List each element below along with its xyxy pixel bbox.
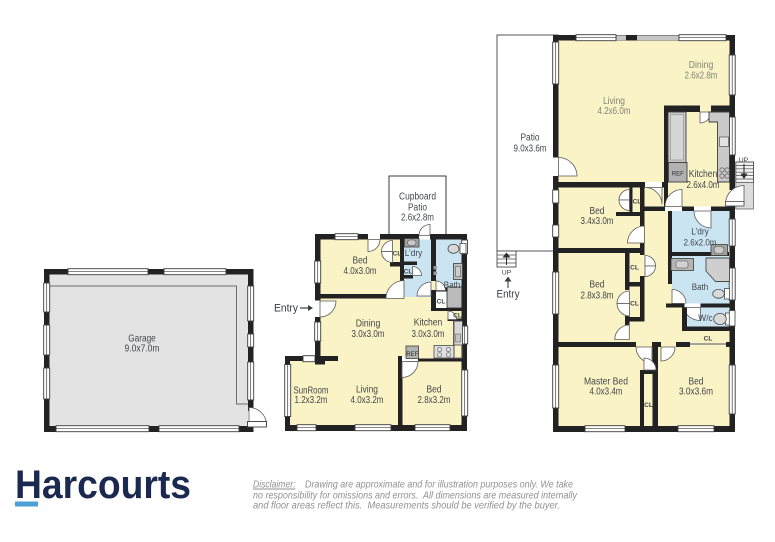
svg-text:UP: UP	[739, 157, 749, 164]
svg-text:9.0x3.6m: 9.0x3.6m	[514, 144, 547, 155]
svg-text:Cupboard: Cupboard	[399, 192, 436, 203]
svg-text:and floor areas reflect this.: and floor areas reflect this. Measuremen…	[253, 501, 560, 512]
svg-text:Bed: Bed	[427, 385, 442, 396]
svg-text:Bed: Bed	[590, 280, 605, 291]
svg-text:2.8x3.2m: 2.8x3.2m	[418, 395, 451, 406]
svg-text:2.6x2.8m: 2.6x2.8m	[401, 213, 434, 224]
svg-text:Entry: Entry	[274, 303, 298, 315]
svg-text:3.0x3.6m: 3.0x3.6m	[679, 387, 713, 398]
svg-text:Bath: Bath	[444, 280, 461, 290]
svg-text:CL: CL	[644, 402, 653, 409]
svg-text:1.2x3.2m: 1.2x3.2m	[295, 395, 328, 406]
svg-text:CL: CL	[453, 313, 462, 320]
svg-text:CL: CL	[404, 269, 413, 276]
svg-text:W/c: W/c	[698, 313, 713, 323]
svg-text:REF: REF	[406, 352, 418, 358]
svg-text:Drawing are approximate and fo: Drawing are approximate and for illustra…	[305, 480, 573, 491]
svg-text:Disclaimer:: Disclaimer:	[253, 480, 296, 491]
svg-text:CL: CL	[633, 199, 642, 206]
svg-text:Bath: Bath	[692, 282, 709, 292]
svg-text:2.6x2.8m: 2.6x2.8m	[685, 71, 718, 82]
svg-text:CL: CL	[630, 265, 639, 272]
svg-text:Living: Living	[356, 385, 378, 396]
svg-text:Entry: Entry	[497, 289, 520, 301]
svg-text:4.2x6.0m: 4.2x6.0m	[598, 106, 631, 117]
svg-text:4.0x3.2m: 4.0x3.2m	[351, 395, 384, 406]
svg-text:Kitchen: Kitchen	[414, 318, 443, 329]
svg-text:Kitchen: Kitchen	[689, 169, 718, 180]
svg-text:REF: REF	[672, 172, 684, 178]
svg-text:4.0x3.4m: 4.0x3.4m	[590, 387, 623, 398]
svg-text:3.0x3.0m: 3.0x3.0m	[412, 329, 445, 340]
svg-text:Harcourts: Harcourts	[15, 463, 191, 507]
svg-text:UP: UP	[502, 270, 512, 277]
svg-text:2.6x2.0m: 2.6x2.0m	[684, 238, 717, 248]
svg-text:CL: CL	[704, 336, 713, 343]
svg-text:2.6x4.0m: 2.6x4.0m	[687, 180, 720, 191]
svg-text:Patio: Patio	[521, 133, 540, 144]
svg-text:Dining: Dining	[689, 60, 714, 71]
svg-text:L’dry: L’dry	[405, 248, 423, 258]
svg-text:L’dry: L’dry	[691, 227, 709, 237]
svg-text:3.4x3.0m: 3.4x3.0m	[581, 216, 614, 227]
svg-text:Bed: Bed	[353, 256, 368, 267]
svg-text:3.0x3.0m: 3.0x3.0m	[352, 329, 385, 340]
svg-text:Dining: Dining	[356, 319, 381, 330]
svg-text:no responsibility for omission: no responsibility for omissions and erro…	[253, 490, 578, 501]
svg-text:CL: CL	[393, 251, 402, 258]
svg-text:4.0x3.0m: 4.0x3.0m	[344, 266, 377, 277]
svg-text:2.8x3.8m: 2.8x3.8m	[581, 291, 614, 302]
svg-text:CL: CL	[437, 299, 446, 306]
svg-text:CL: CL	[630, 301, 639, 308]
svg-text:9.0x7.0m: 9.0x7.0m	[125, 344, 160, 355]
